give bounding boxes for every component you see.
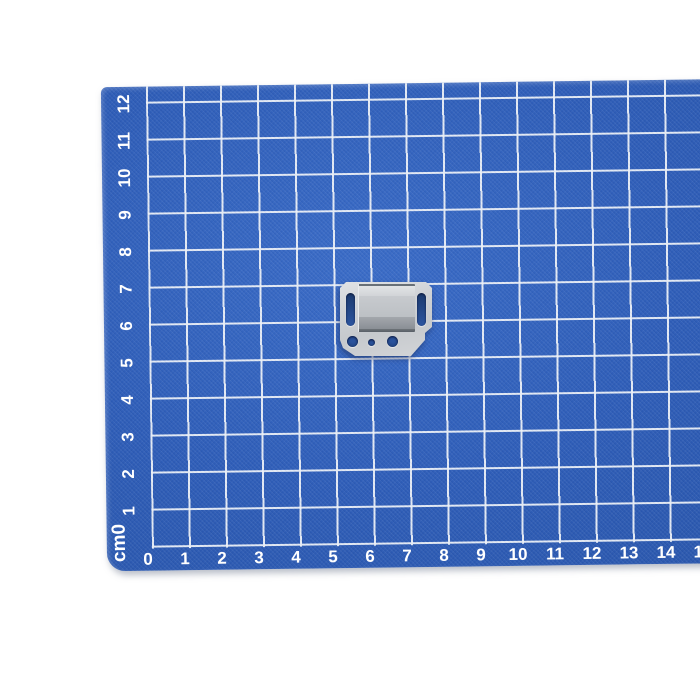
x-axis-tick: 2 bbox=[204, 548, 240, 568]
metal-clip bbox=[340, 282, 432, 356]
x-axis-tick: 3 bbox=[241, 548, 277, 568]
y-axis-tick: 8 bbox=[118, 234, 134, 270]
x-axis-tick: 14 bbox=[648, 543, 684, 563]
x-axis-tick: 8 bbox=[426, 546, 462, 566]
clip-hole-left bbox=[347, 336, 358, 347]
x-axis-tick: 6 bbox=[352, 547, 388, 567]
x-axis-tick: 12 bbox=[574, 544, 610, 564]
clip-slot-left bbox=[346, 293, 355, 326]
x-axis-tick: 4 bbox=[278, 547, 314, 567]
clip-block-base-shadow bbox=[359, 329, 415, 332]
x-axis-tick: 7 bbox=[389, 546, 425, 566]
y-axis-tick: 9 bbox=[117, 197, 133, 233]
photo-stage: 0123456789101112131415 123456789101112 c… bbox=[0, 0, 700, 700]
x-axis-tick: 5 bbox=[315, 547, 351, 567]
y-axis-tick: 5 bbox=[119, 345, 135, 381]
y-axis-tick: 7 bbox=[118, 271, 134, 307]
y-axis-tick: 10 bbox=[117, 160, 133, 196]
clip-hole-right bbox=[387, 336, 398, 347]
x-axis-tick: 10 bbox=[500, 545, 536, 565]
x-axis-tick: 9 bbox=[463, 545, 499, 565]
clip-raised-block bbox=[358, 284, 415, 332]
x-axis-tick: 11 bbox=[537, 544, 573, 564]
clip-slot-right bbox=[417, 293, 426, 326]
y-axis-tick: 3 bbox=[120, 419, 136, 455]
y-axis-tick: 2 bbox=[121, 456, 137, 492]
clip-block-front-face bbox=[359, 296, 415, 317]
x-axis-tick: 1 bbox=[167, 549, 203, 569]
y-axis-tick: 4 bbox=[120, 382, 136, 418]
x-axis-tick: 15 bbox=[685, 542, 700, 562]
clip-hole-center bbox=[368, 339, 375, 346]
unit-label: cm0 bbox=[110, 520, 131, 566]
clip-block-lower-band bbox=[359, 317, 415, 329]
clip-plate bbox=[340, 282, 432, 356]
y-axis-tick: 12 bbox=[116, 86, 132, 122]
x-axis-tick: 13 bbox=[611, 543, 647, 563]
x-axis-tick: 0 bbox=[130, 549, 166, 569]
y-axis-tick: 6 bbox=[119, 308, 135, 344]
clip-block-top-face bbox=[359, 286, 415, 296]
y-axis-tick: 11 bbox=[116, 123, 132, 159]
